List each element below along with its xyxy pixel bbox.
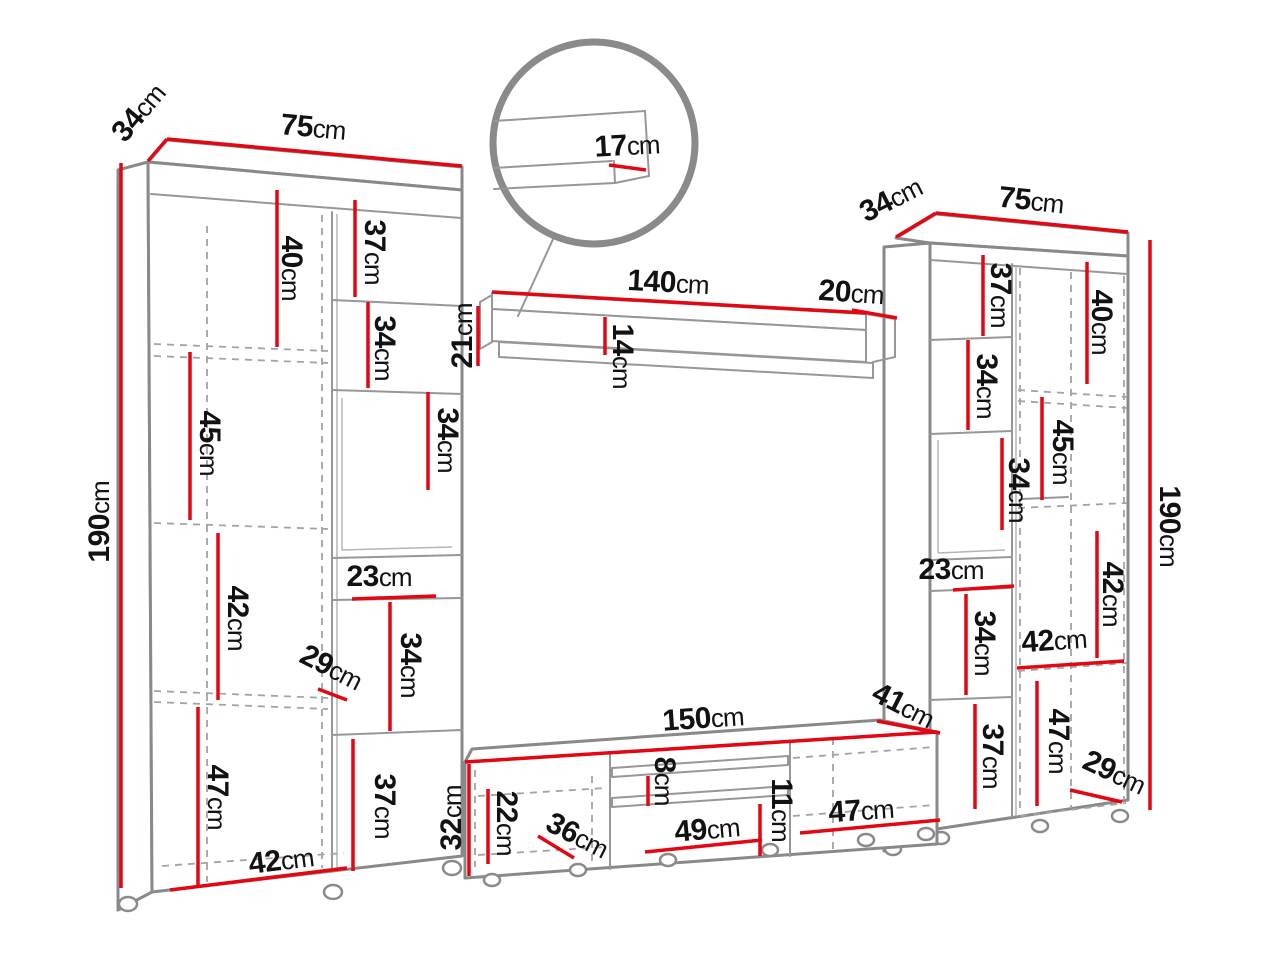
dim-unit: cm [706, 812, 741, 845]
dim-left-niche-height: 34cm [432, 407, 462, 472]
dim-unit: cm [969, 643, 999, 676]
dim-unit: cm [1043, 741, 1073, 774]
dim-value: 37 [368, 773, 401, 805]
dim-unit: cm [1053, 624, 1088, 656]
dim-unit: cm [369, 348, 399, 381]
dim-value: 150 [661, 701, 712, 737]
dim-shelf-front-height: 14cm [607, 323, 637, 388]
dim-value: 34 [1002, 457, 1035, 489]
dim-stand-right-gap: 11cm [766, 778, 796, 841]
dim-unit: cm [607, 356, 637, 389]
dim-left-door-shelf-1: 40cm [276, 235, 306, 300]
dim-unit: cm [222, 618, 252, 651]
dim-unit: cm [369, 806, 399, 839]
dim-left-door-shelf-2: 45cm [194, 410, 224, 475]
dim-unit: cm [85, 481, 115, 514]
dim-value: 22 [490, 790, 523, 822]
dim-unit: cm [710, 701, 745, 733]
dim-stand-center-width: 49cm [673, 812, 740, 848]
dim-unit: cm [448, 303, 478, 336]
dim-unit: cm [1154, 534, 1184, 567]
dim-unit: cm [971, 386, 1001, 419]
dim-value: 190 [1153, 485, 1186, 534]
dim-unit: cm [860, 794, 895, 826]
dim-right-niche-height: 34cm [1003, 457, 1033, 522]
dim-value: 45 [193, 410, 226, 442]
dim-value: 37 [984, 262, 1017, 294]
dim-unit: cm [1097, 594, 1127, 627]
dim-stand-height: 32cm [437, 785, 467, 850]
dim-shelf-width: 140cm [627, 266, 710, 300]
dim-left-compartment-4: 37cm [369, 773, 399, 838]
dim-unit: cm [649, 773, 679, 806]
dim-left-cabinet-height: 190cm [85, 481, 115, 562]
dim-value: 34 [431, 407, 464, 439]
dim-unit: cm [985, 295, 1015, 328]
dim-unit: cm [359, 252, 389, 285]
dim-value: 42 [247, 844, 283, 881]
dim-unit: cm [977, 756, 1007, 789]
dim-unit: cm [279, 842, 315, 876]
dim-right-door-shelf-4: 47cm [1043, 708, 1073, 773]
dim-stand-width: 150cm [661, 701, 744, 737]
dim-value: 23 [346, 560, 378, 593]
dim-unit: cm [395, 665, 425, 698]
dim-left-compartment-1: 37cm [359, 219, 389, 284]
dim-right-niche-depth: 23cm [918, 555, 983, 585]
dim-unit: cm [1086, 322, 1116, 355]
furniture-dimension-diagram: 34cm 75cm 190cm 40cm 37cm 34cm 34cm 45cm… [0, 0, 1280, 960]
dim-value: 47 [1042, 708, 1075, 740]
dim-value: 47 [201, 764, 234, 796]
dim-right-compartment-3: 34cm [969, 610, 999, 675]
dim-value: 21 [446, 336, 479, 368]
dim-value: 20 [817, 274, 852, 309]
dim-right-cabinet-width: 75cm [997, 183, 1065, 220]
dim-shelf-height: 21cm [448, 303, 478, 368]
dim-unit: cm [1047, 452, 1077, 485]
dim-shelf-depth: 20cm [818, 276, 885, 310]
dim-right-door-shelf-2: 45cm [1047, 419, 1077, 484]
dim-value: 11 [765, 778, 798, 809]
dim-unit: cm [312, 113, 347, 146]
dim-value: 37 [976, 723, 1009, 755]
dim-value: 47 [827, 794, 862, 829]
dim-value: 34 [394, 632, 427, 664]
dim-stand-right-width: 47cm [828, 794, 895, 828]
dim-value: 49 [673, 813, 708, 849]
dim-unit: cm [675, 268, 709, 300]
dim-unit: cm [379, 562, 412, 592]
dim-value: 75 [279, 108, 314, 144]
dim-right-door-shelf-1: 40cm [1086, 289, 1116, 354]
dim-unit: cm [432, 440, 462, 473]
dim-value: 34 [368, 315, 401, 347]
dim-left-door-shelf-4: 47cm [202, 764, 232, 829]
dim-unit: cm [850, 278, 885, 310]
dim-right-shelf-width: 42cm [1021, 624, 1088, 658]
dim-right-compartment-4: 37cm [977, 723, 1007, 788]
dim-unit: cm [1003, 490, 1033, 523]
dim-value: 34 [968, 610, 1001, 642]
dim-right-compartment-2: 34cm [971, 353, 1001, 418]
dim-unit: cm [491, 823, 521, 856]
dim-value: 140 [627, 264, 677, 299]
dim-unit: cm [626, 129, 660, 161]
dim-value: 17 [594, 129, 628, 164]
dim-left-compartment-3: 34cm [395, 632, 425, 697]
dim-value: 42 [1020, 624, 1055, 659]
dim-unit: cm [276, 268, 306, 301]
dim-left-niche-depth: 23cm [346, 562, 411, 592]
dim-unit: cm [202, 797, 232, 830]
dim-right-cabinet-height: 190cm [1154, 485, 1184, 566]
dim-value: 190 [83, 514, 116, 563]
dim-stand-shelf-gap: 8cm [649, 757, 679, 806]
dim-value: 42 [221, 585, 254, 617]
dim-value: 42 [1096, 561, 1129, 593]
dim-unit: cm [194, 443, 224, 476]
dim-value: 23 [918, 553, 950, 586]
dim-right-door-shelf-3: 42cm [1097, 561, 1127, 626]
dim-shelf-lip-detail: 17cm [594, 129, 661, 162]
dim-value: 75 [997, 181, 1033, 217]
dim-unit: cm [951, 555, 984, 585]
dim-value: 34 [970, 353, 1003, 385]
dim-value: 37 [358, 219, 391, 251]
dim-value: 40 [1085, 289, 1118, 321]
dim-value: 8 [648, 757, 681, 773]
dim-value: 40 [275, 235, 308, 267]
dim-unit: cm [437, 785, 467, 818]
dim-value: 45 [1046, 419, 1079, 451]
dim-right-compartment-1: 37cm [985, 262, 1015, 327]
dim-unit: cm [766, 809, 796, 842]
dim-left-compartment-2: 34cm [369, 315, 399, 380]
dim-left-door-shelf-3: 42cm [222, 585, 252, 650]
dim-left-cabinet-width: 75cm [279, 110, 346, 146]
dim-value: 14 [606, 323, 639, 355]
dim-unit: cm [1029, 186, 1065, 219]
dim-stand-compartment-height: 22cm [491, 790, 521, 855]
dim-value: 32 [435, 818, 468, 850]
